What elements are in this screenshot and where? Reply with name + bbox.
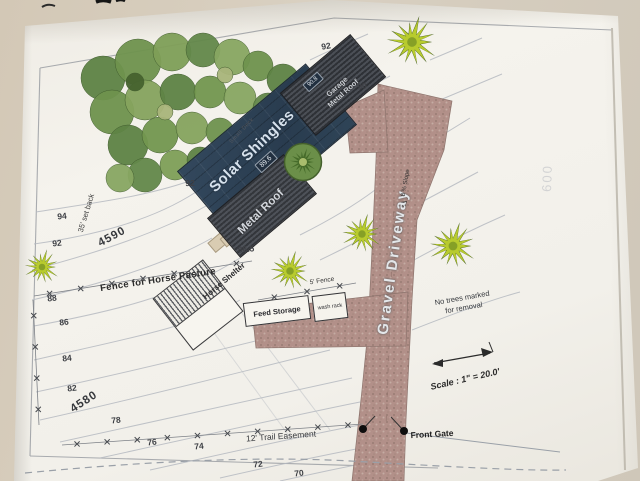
scale-arrow-icon: [432, 342, 493, 367]
front-gate-dot: [400, 427, 408, 435]
wash-rack-label: wash rack: [317, 303, 342, 312]
handwriting-marks: [42, 0, 125, 7]
wash-rack-building: wash rack: [312, 292, 349, 322]
site-plan-photo: Feed Storage wash rack Solar Shingles Me…: [0, 0, 640, 481]
tree-circle-icon: [283, 142, 323, 182]
front-gate-dot: [359, 425, 367, 433]
faint-background-mark: 600: [539, 164, 555, 192]
feed-storage-label: Feed Storage: [253, 304, 301, 319]
